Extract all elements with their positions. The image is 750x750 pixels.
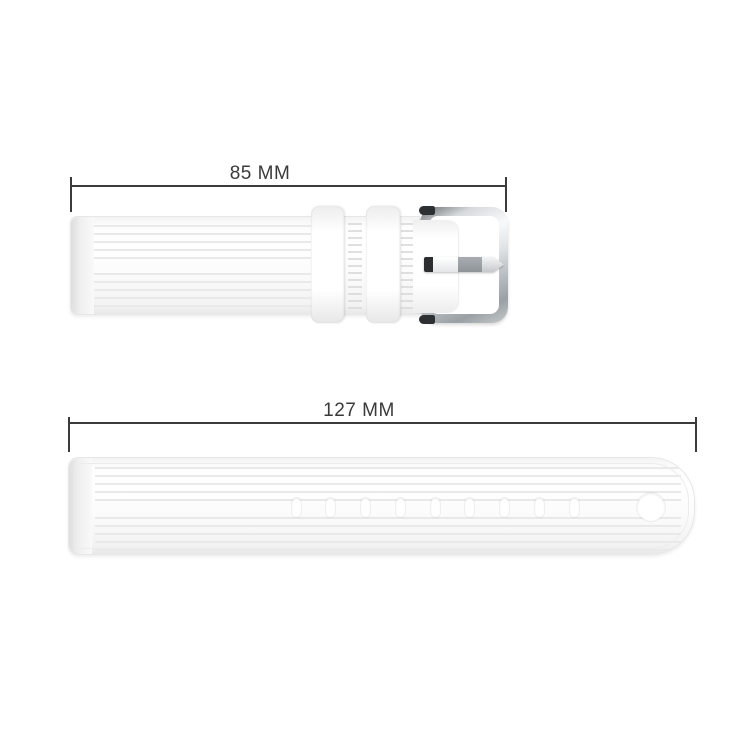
strap-pill-hole <box>465 498 474 517</box>
buckle-prong <box>424 257 504 272</box>
long-strap-rib-texture-bottom <box>95 517 681 551</box>
buckle-bar-accent-bottom <box>419 315 435 324</box>
buckle-prong-grip <box>458 257 482 272</box>
bottom-dimension-left-tick <box>68 417 70 452</box>
strap-pill-hole <box>292 498 301 517</box>
short-strap-rib-texture-top <box>94 225 311 260</box>
buckle-bar-accent-top <box>419 206 435 215</box>
strap-round-hole <box>637 493 665 521</box>
buckle-prong-root <box>424 257 433 272</box>
watch-strap-dimension-diagram: 85 MM 127 MM <box>0 0 750 750</box>
bottom-dimension-right-tick <box>695 417 697 452</box>
strap-pill-hole <box>361 498 370 517</box>
short-strap-rib-texture-bottom <box>94 273 311 310</box>
top-dimension-label: 85 MM <box>200 163 320 185</box>
long-strap-end-cap <box>69 458 92 554</box>
strap-pill-hole <box>535 498 544 517</box>
buckle-prong-tip <box>482 257 504 272</box>
short-strap-end-cap <box>71 217 94 314</box>
strap-keeper-loop-2 <box>366 206 400 323</box>
top-dimension-right-tick <box>505 177 507 212</box>
strap-pill-hole <box>396 498 405 517</box>
long-strap-rib-texture-top <box>95 467 681 502</box>
top-dimension-line <box>70 185 507 187</box>
bottom-dimension-label: 127 MM <box>299 400 419 422</box>
buckle-prong-shaft <box>433 257 458 272</box>
strap-pill-hole <box>431 498 440 517</box>
bottom-dimension-line <box>68 422 697 424</box>
strap-pill-hole <box>570 498 579 517</box>
strap-keeper-loop-1 <box>311 206 344 323</box>
short-strap-ridge-column <box>348 223 362 309</box>
strap-pill-hole <box>500 498 509 517</box>
top-dimension-left-tick <box>70 177 72 212</box>
strap-pill-hole <box>326 498 335 517</box>
long-strap <box>68 457 695 555</box>
